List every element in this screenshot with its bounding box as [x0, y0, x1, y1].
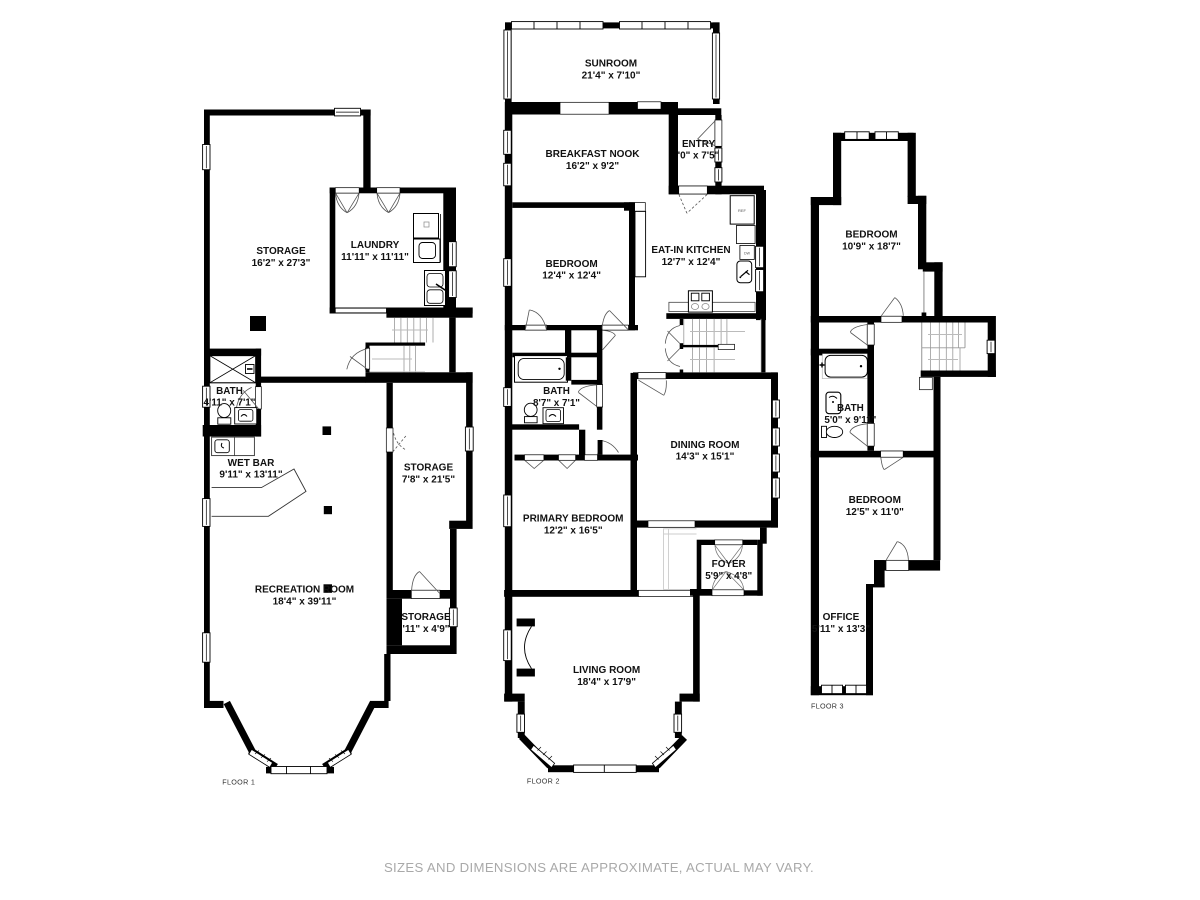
svg-text:REF: REF: [738, 208, 747, 213]
svg-text:RECREATION ROOM: RECREATION ROOM: [255, 585, 354, 596]
svg-text:LAUNDRY: LAUNDRY: [351, 240, 400, 251]
svg-text:12'7" x 12'4": 12'7" x 12'4": [662, 257, 721, 268]
svg-text:BEDROOM: BEDROOM: [845, 230, 897, 241]
svg-text:8'7" x 7'1": 8'7" x 7'1": [533, 398, 580, 409]
svg-text:BEDROOM: BEDROOM: [849, 495, 901, 506]
svg-text:OFFICE: OFFICE: [823, 612, 860, 623]
svg-text:12'2" x 16'5": 12'2" x 16'5": [544, 525, 603, 536]
svg-text:STORAGE: STORAGE: [401, 612, 451, 623]
svg-text:DW: DW: [744, 252, 751, 256]
svg-text:5'9" x 4'8": 5'9" x 4'8": [705, 571, 752, 582]
svg-text:ENTRY: ENTRY: [682, 139, 716, 150]
svg-text:FLOOR 1: FLOOR 1: [222, 778, 255, 787]
svg-text:WET BAR: WET BAR: [228, 458, 275, 469]
svg-text:5'11" x 13'3": 5'11" x 13'3": [812, 624, 870, 635]
svg-text:FLOOR 2: FLOOR 2: [527, 777, 560, 786]
svg-text:10'9" x 18'7": 10'9" x 18'7": [842, 241, 901, 252]
svg-text:4'11" x 7'1": 4'11" x 7'1": [204, 398, 256, 409]
svg-text:BATH: BATH: [216, 386, 243, 397]
svg-text:PRIMARY BEDROOM: PRIMARY BEDROOM: [523, 514, 624, 525]
svg-text:STORAGE: STORAGE: [256, 246, 306, 257]
svg-text:18'4" x 17'9": 18'4" x 17'9": [577, 677, 636, 688]
svg-text:18'4" x 39'11": 18'4" x 39'11": [273, 596, 337, 607]
svg-text:BEDROOM: BEDROOM: [545, 259, 597, 270]
svg-text:STORAGE: STORAGE: [404, 463, 454, 474]
svg-text:9'11" x 13'11": 9'11" x 13'11": [219, 470, 282, 481]
svg-text:11'11" x 11'11": 11'11" x 11'11": [341, 252, 409, 263]
svg-text:12'5" x 11'0": 12'5" x 11'0": [846, 507, 904, 518]
svg-text:7'8" x 21'5": 7'8" x 21'5": [402, 474, 455, 485]
svg-text:DINING ROOM: DINING ROOM: [671, 440, 740, 451]
svg-text:BATH: BATH: [837, 403, 864, 414]
svg-text:LIVING ROOM: LIVING ROOM: [573, 665, 640, 676]
svg-text:SUNROOM: SUNROOM: [585, 59, 637, 70]
svg-text:5'0" x 9'11": 5'0" x 9'11": [824, 415, 876, 426]
svg-text:16'2" x 9'2": 16'2" x 9'2": [566, 161, 619, 172]
svg-text:FLOOR 3: FLOOR 3: [811, 702, 844, 711]
svg-text:FOYER: FOYER: [712, 559, 746, 570]
svg-text:'11" x 4'9": '11" x 4'9": [402, 624, 449, 635]
svg-text:SIZES AND DIMENSIONS ARE APPRO: SIZES AND DIMENSIONS ARE APPROXIMATE, AC…: [384, 860, 814, 875]
svg-text:12'4" x 12'4": 12'4" x 12'4": [542, 271, 601, 282]
svg-text:BATH: BATH: [543, 386, 570, 397]
svg-text:BREAKFAST NOOK: BREAKFAST NOOK: [546, 149, 641, 160]
svg-text:14'3" x 15'1": 14'3" x 15'1": [676, 452, 735, 463]
svg-text:'0" x 7'5": '0" x 7'5": [678, 151, 720, 162]
svg-text:21'4" x 7'10": 21'4" x 7'10": [582, 70, 641, 81]
svg-text:EAT-IN KITCHEN: EAT-IN KITCHEN: [651, 245, 730, 256]
svg-text:16'2" x 27'3": 16'2" x 27'3": [252, 258, 311, 269]
